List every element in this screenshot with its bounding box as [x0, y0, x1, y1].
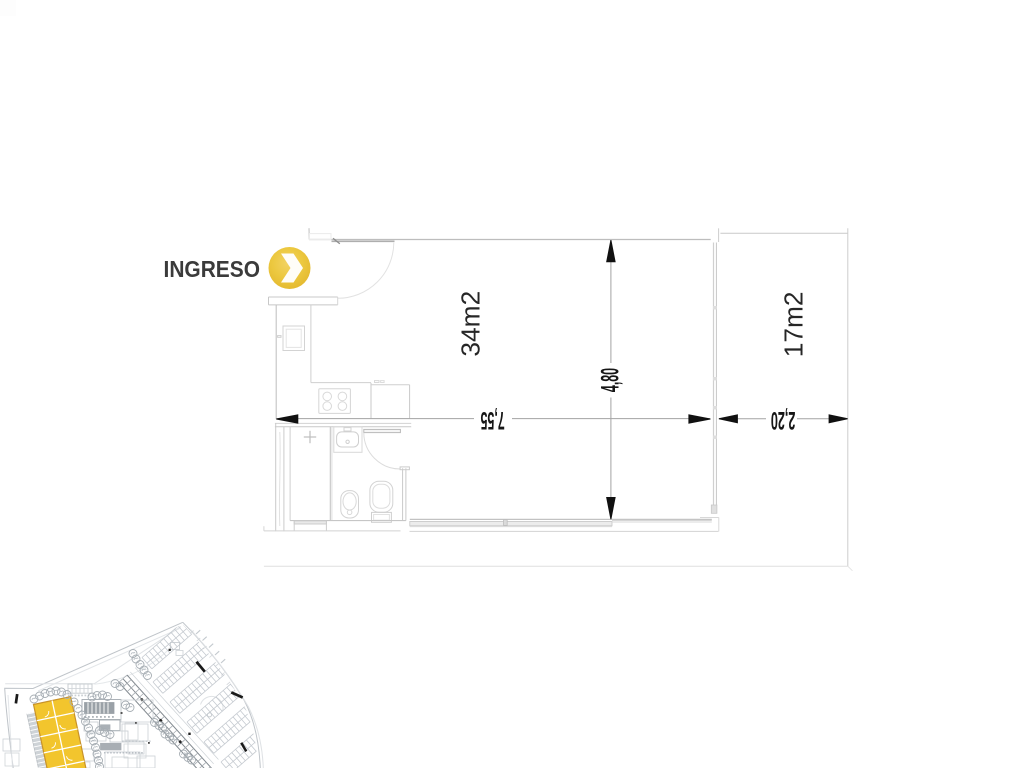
svg-text:7,55: 7,55 [481, 406, 505, 434]
svg-text:4,80: 4,80 [596, 368, 624, 392]
svg-text:17m2: 17m2 [779, 292, 809, 358]
svg-text:INGRESO: INGRESO [164, 256, 261, 282]
svg-text:34m2: 34m2 [455, 291, 485, 357]
svg-text:2,20: 2,20 [771, 406, 796, 434]
